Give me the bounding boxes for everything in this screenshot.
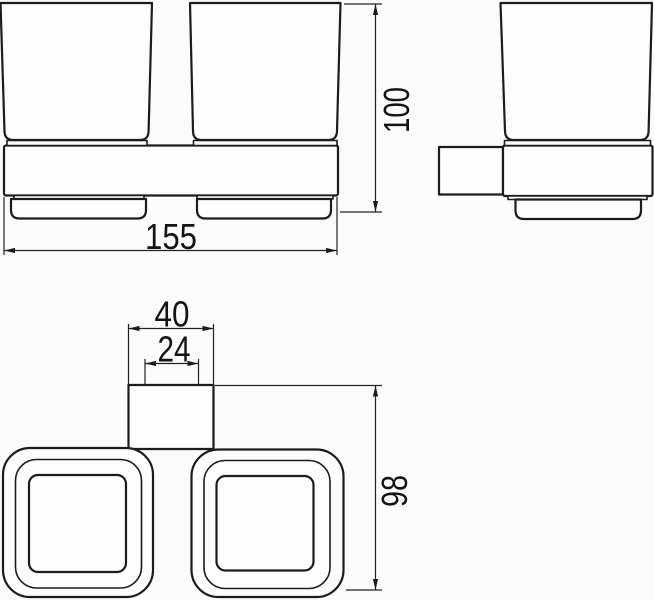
dim-98-arrow-bottom [373, 579, 378, 590]
dim-40-arrow-right [203, 326, 214, 331]
dim-155-arrow-right [326, 248, 337, 253]
front-right-collar [194, 141, 338, 146]
plan-right-cup-inner [217, 476, 314, 571]
dimension-drawing-canvas: 155 100 40 24 [0, 0, 654, 600]
side-cup [501, 3, 653, 140]
side-holder-body [503, 146, 653, 197]
side-wall-bracket [439, 147, 503, 195]
dim-40-arrow-left [129, 326, 140, 331]
front-left-collar [7, 141, 147, 146]
dim-100-arrow-bottom [373, 201, 378, 212]
plan-left-cup-inner [29, 475, 126, 572]
dim-24-arrow-left [145, 361, 156, 366]
dim-155-arrow-left [4, 248, 15, 253]
dimension-height-100: 100 [340, 4, 417, 212]
side-view [439, 3, 653, 219]
dim-155-label: 155 [145, 216, 197, 257]
front-right-cup [190, 3, 341, 140]
front-view [1, 3, 341, 219]
technical-drawing-page: 155 100 40 24 [0, 0, 654, 600]
front-left-ring [11, 199, 146, 219]
dim-100-arrow-top [373, 4, 378, 15]
front-left-cup [1, 3, 153, 140]
plan-wall-plate [129, 385, 214, 449]
dimension-inner-24: 24 [145, 329, 199, 386]
side-collar [505, 141, 651, 146]
dim-100-label: 100 [376, 87, 417, 133]
dim-24-label: 24 [158, 329, 191, 370]
front-right-ring [197, 199, 331, 219]
front-mounting-plate [4, 146, 338, 196]
plan-view [3, 385, 344, 597]
dim-98-arrow-top [373, 386, 378, 397]
side-ring [516, 200, 642, 220]
dim-98-label: 98 [374, 475, 415, 507]
